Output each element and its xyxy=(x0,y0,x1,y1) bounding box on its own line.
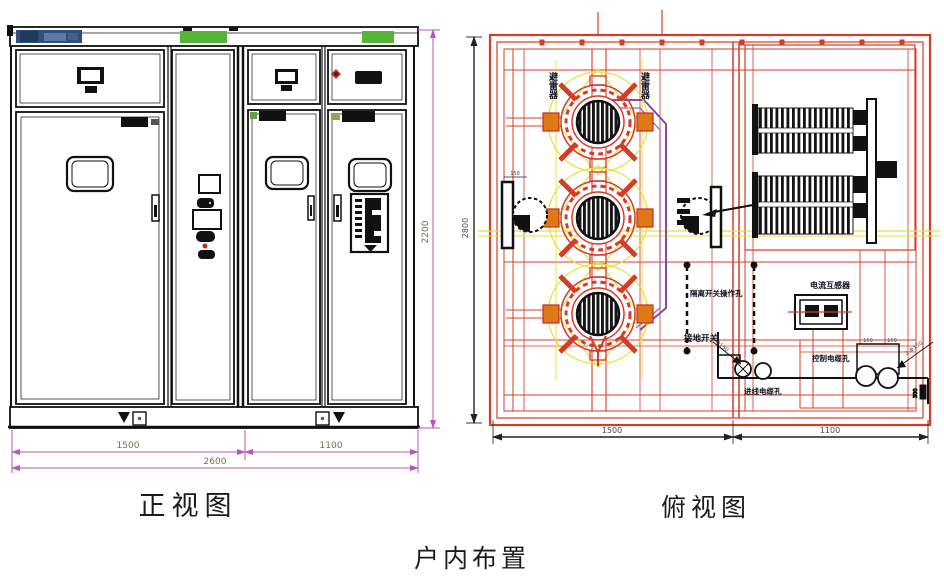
cabinet-c xyxy=(248,50,320,404)
green-vent-strip xyxy=(180,31,227,43)
cabinet-top-rail xyxy=(7,25,418,46)
door-handle[interactable] xyxy=(152,195,159,221)
control-cable-holes: 控制电缆孔 150 150 2-Φ150 xyxy=(812,338,933,388)
arrester-label-right: 避雷器 xyxy=(639,71,651,100)
cable-leader-right: 2-Φ150 xyxy=(904,340,924,357)
relay-display-icon xyxy=(275,69,298,91)
incoming-cable-label: 进线电缆孔 xyxy=(744,386,782,396)
inspection-window xyxy=(349,159,391,191)
hole-dim-b: 150 xyxy=(887,338,897,344)
top-view-dimensions: 1500 1100 xyxy=(493,420,928,444)
relay-display-icon xyxy=(77,67,104,93)
front-view-caption: 正视图 xyxy=(139,491,238,521)
disconnector-label: 隔离开关操作孔 xyxy=(690,288,743,298)
drawing-svg: 2200 1500 1100 2600 正视图 2800 xyxy=(0,0,944,582)
phase-unit-b xyxy=(543,165,653,271)
dim-left-bay: 1500 xyxy=(602,426,622,435)
interlock-panel xyxy=(351,194,388,252)
label-strip xyxy=(342,111,375,122)
phase-unit-a xyxy=(543,69,653,175)
front-view: 2200 1500 1100 2600 正视图 xyxy=(7,25,440,521)
dim-total-width: 2600 xyxy=(204,457,227,467)
indicator-lamp xyxy=(203,244,208,249)
page-title: 户内布置 xyxy=(414,545,530,573)
dim-300: 300 xyxy=(913,388,919,398)
corner-mark xyxy=(7,25,13,36)
current-transformer: 电流互感器 xyxy=(788,280,852,329)
top-view: 2800 xyxy=(461,10,940,522)
incoming-cable-holes: 2-Φ150 进线电缆孔 xyxy=(710,336,782,396)
inspection-window xyxy=(67,157,113,191)
ct-label: 电流互感器 xyxy=(810,280,851,290)
door-handle[interactable] xyxy=(334,195,341,221)
top-view-caption: 俯视图 xyxy=(661,494,751,522)
cabinet-base xyxy=(8,407,420,428)
top-view-depth-dimension: 2800 xyxy=(461,37,482,423)
fan-dim: 150 xyxy=(510,171,520,177)
inspection-window xyxy=(266,157,308,189)
nameplate xyxy=(16,30,82,43)
dim-depth: 2800 xyxy=(461,218,470,238)
cabinet-a xyxy=(16,50,164,404)
dim-height: 2200 xyxy=(421,220,431,243)
reactor-terminal xyxy=(876,161,897,178)
dim-right-bay: 1100 xyxy=(820,426,840,435)
label-strip xyxy=(121,117,148,127)
control-cable-label: 控制电缆孔 xyxy=(812,353,850,363)
meter-icon xyxy=(355,71,382,84)
dim-right-width: 1100 xyxy=(320,441,343,451)
reactor xyxy=(752,99,897,243)
hole-dim-a: 150 xyxy=(863,338,873,344)
cabinet-b xyxy=(172,50,234,404)
cable-leader-left: 2-Φ150 xyxy=(710,336,730,354)
green-vent-strip xyxy=(362,31,394,43)
label-strip xyxy=(259,111,286,121)
arrester-label-left: 避雷器 xyxy=(547,71,559,100)
dim-left-width: 1500 xyxy=(117,441,140,451)
cabinet-d xyxy=(328,50,406,404)
door-handle[interactable] xyxy=(308,196,314,220)
drawing-sheet: 2200 1500 1100 2600 正视图 2800 xyxy=(0,0,944,582)
device-stack xyxy=(193,175,221,259)
